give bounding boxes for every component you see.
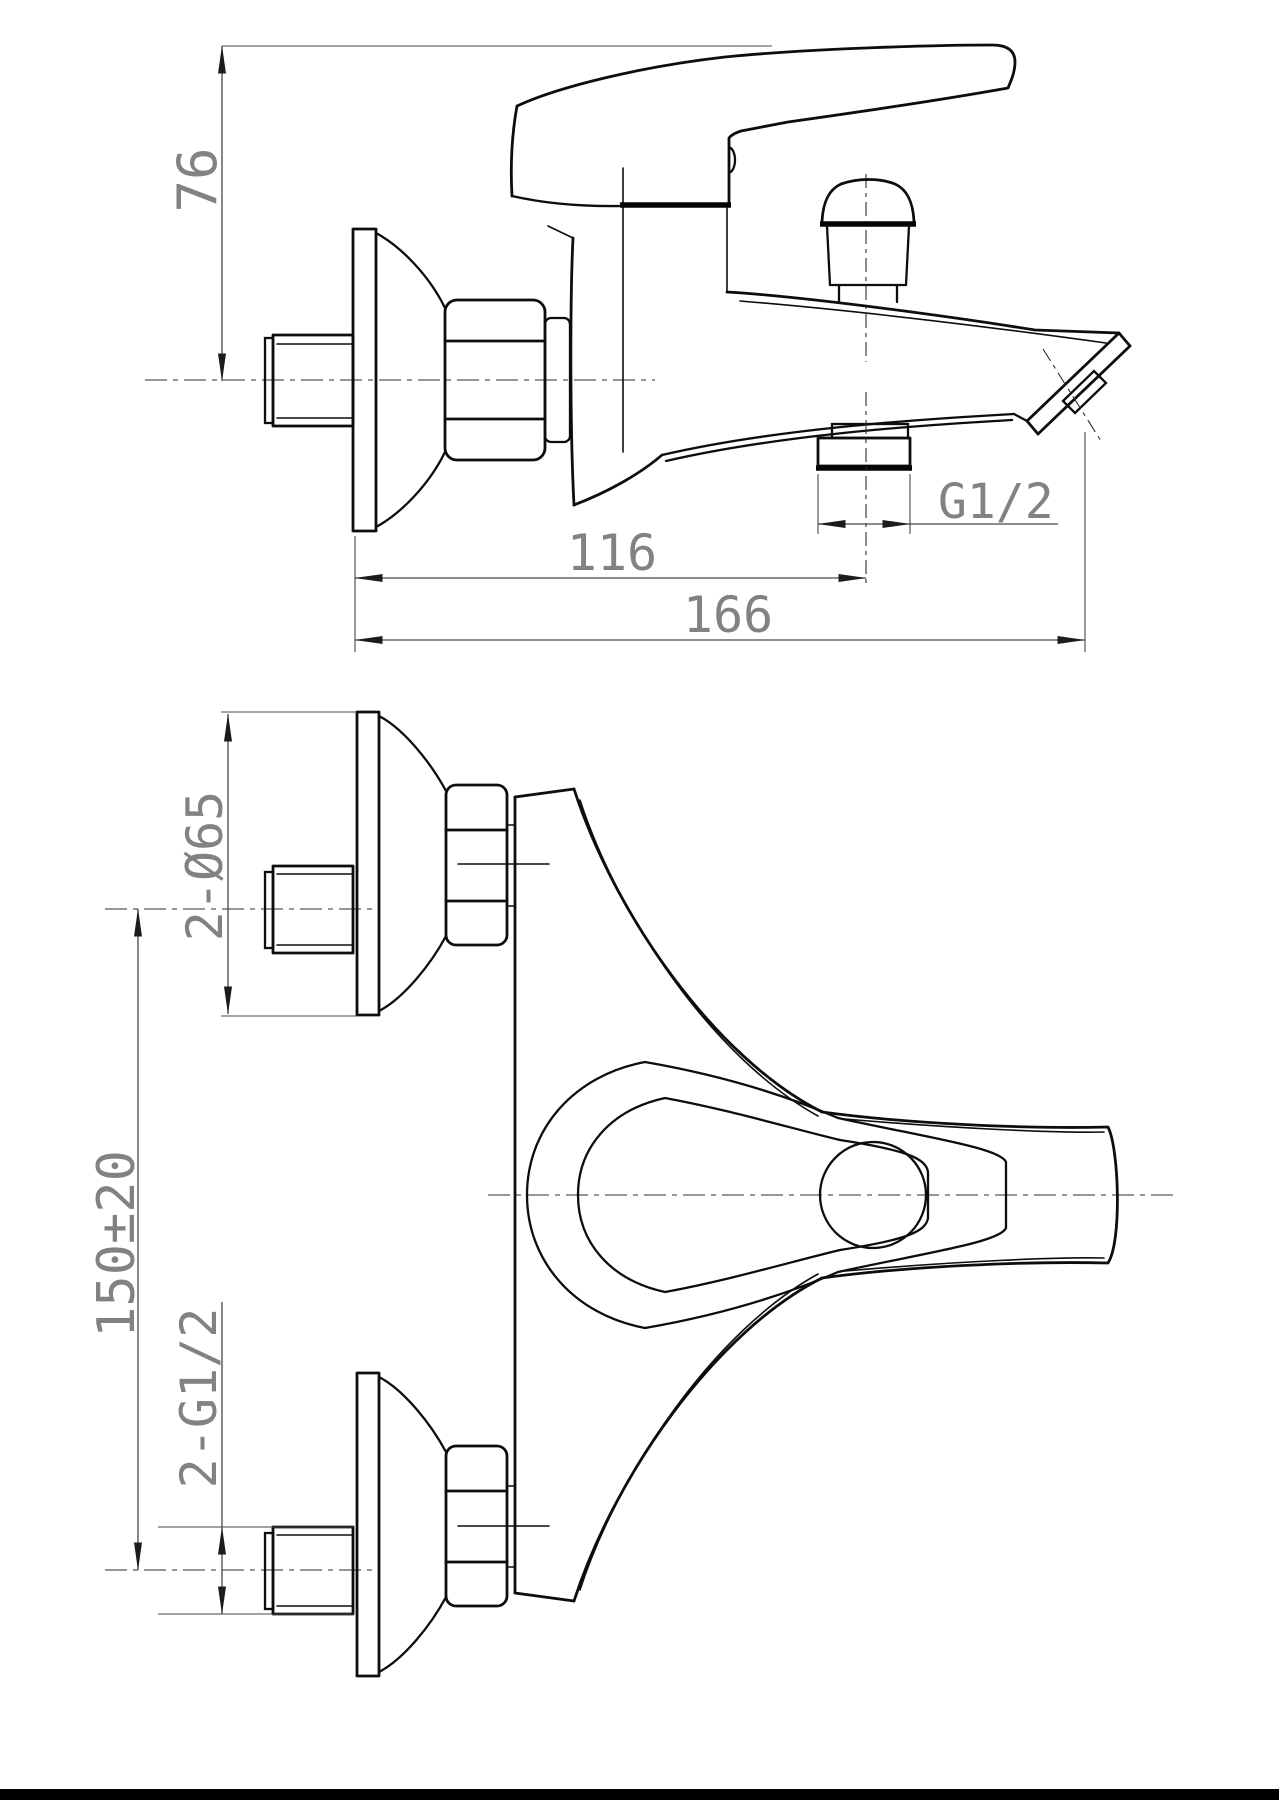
drawing-page: 76 G1/2 116 166: [0, 0, 1279, 1800]
dim-76: 76: [166, 46, 772, 381]
spout-side: [662, 292, 1130, 461]
dim-150-20-label: 150±20: [87, 1150, 147, 1338]
aerator: [1063, 371, 1106, 413]
spout-tip: [1027, 333, 1130, 441]
dim-g12-outlet-label: G1/2: [938, 474, 1054, 530]
upper-connection-plan: [105, 712, 549, 1015]
footer-bar: [0, 1789, 1279, 1800]
side-elevation-view: 76 G1/2 116 166: [145, 45, 1130, 652]
plan-view: 2-Ø65 150±20 2-G1/2: [87, 712, 1178, 1676]
dim-166: 166: [355, 432, 1085, 652]
drawing-canvas: 76 G1/2 116 166: [0, 0, 1279, 1800]
dim-2-g12: 2-G1/2: [158, 1302, 353, 1614]
dim-2-d65-label: 2-Ø65: [176, 791, 234, 942]
diverter-knob: [820, 174, 916, 362]
lever-handle-side: [511, 45, 1015, 206]
dim-g12-outlet: G1/2: [818, 474, 1058, 534]
dim-76-label: 76: [166, 147, 229, 212]
dim-116: 116: [355, 524, 866, 652]
dim-2-g12-label: 2-G1/2: [170, 1308, 228, 1489]
dim-166-label: 166: [683, 586, 773, 644]
dim-150-20: 150±20: [87, 909, 147, 1570]
dim-2-d65: 2-Ø65: [176, 712, 357, 1016]
dim-116-label: 116: [567, 524, 657, 582]
